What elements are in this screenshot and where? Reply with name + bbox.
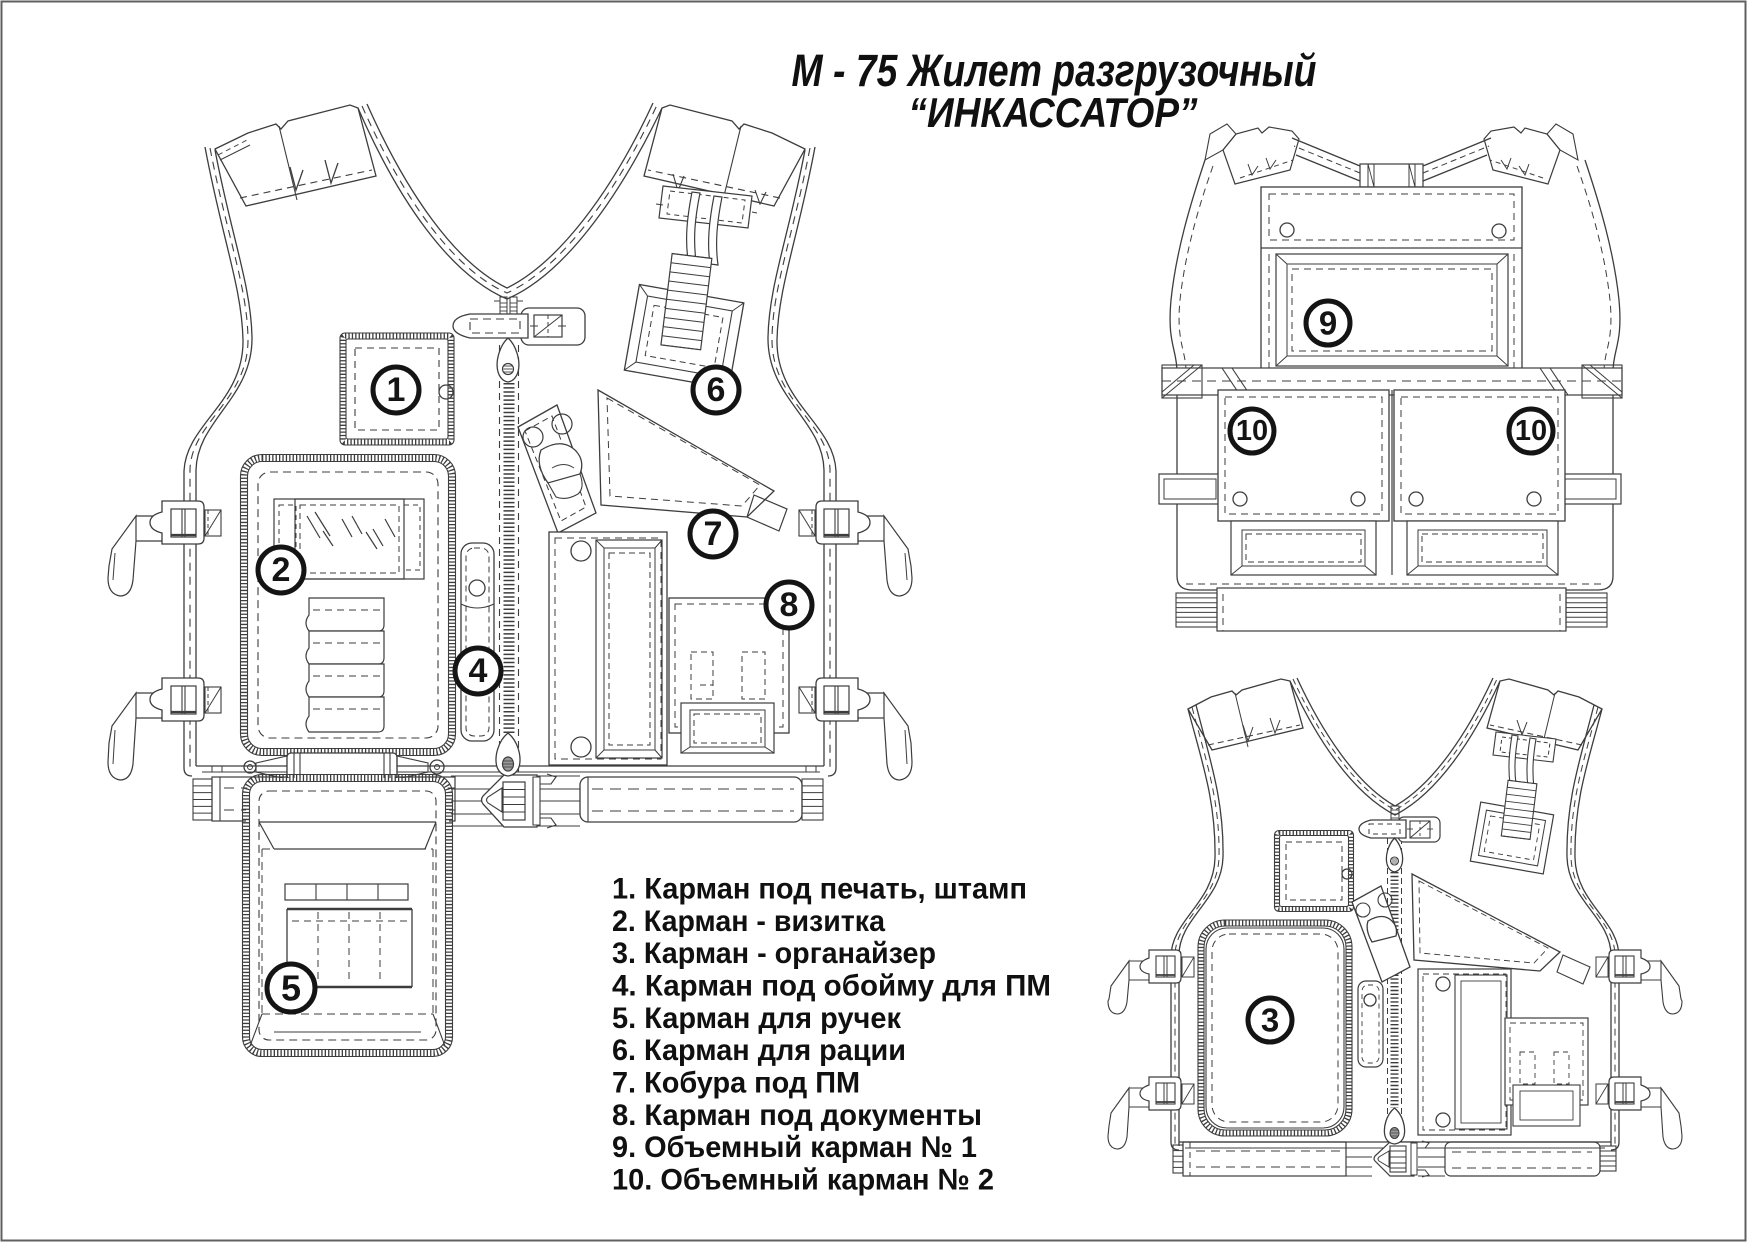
svg-text:6: 6: [707, 371, 726, 409]
svg-text:2: 2: [272, 551, 291, 589]
svg-text:9: 9: [1319, 305, 1337, 342]
svg-text:4. Карман под обойму для ПМ: 4. Карман под обойму для ПМ: [612, 970, 1051, 1003]
svg-text:5. Карман для ручек: 5. Карман для ручек: [612, 1002, 902, 1035]
svg-text:1: 1: [387, 371, 406, 409]
svg-text:1. Карман под печать, штамп: 1. Карман под печать, штамп: [612, 873, 1027, 906]
svg-text:10: 10: [1236, 415, 1268, 447]
svg-text:9. Объемный карман № 1: 9. Объемный карман № 1: [612, 1131, 977, 1164]
svg-text:2. Карман - визитка: 2. Карман - визитка: [612, 905, 885, 938]
svg-text:3: 3: [1261, 1002, 1279, 1039]
svg-text:8. Карман под документы: 8. Карман под документы: [612, 1099, 982, 1132]
svg-text:3. Карман - органайзер: 3. Карман - органайзер: [612, 937, 936, 970]
svg-text:10: 10: [1515, 415, 1547, 447]
svg-text:6. Карман для рации: 6. Карман для рации: [612, 1034, 906, 1067]
svg-text:4: 4: [469, 652, 488, 690]
svg-text:7. Кобура под ПМ: 7. Кобура под ПМ: [612, 1067, 860, 1100]
svg-text:7: 7: [704, 515, 723, 553]
svg-text:8: 8: [780, 586, 799, 624]
svg-text:“ИНКАССАТОР”: “ИНКАССАТОР”: [909, 89, 1198, 136]
svg-text:5: 5: [281, 968, 301, 1009]
svg-text:10. Объемный карман № 2: 10. Объемный карман № 2: [612, 1164, 994, 1197]
